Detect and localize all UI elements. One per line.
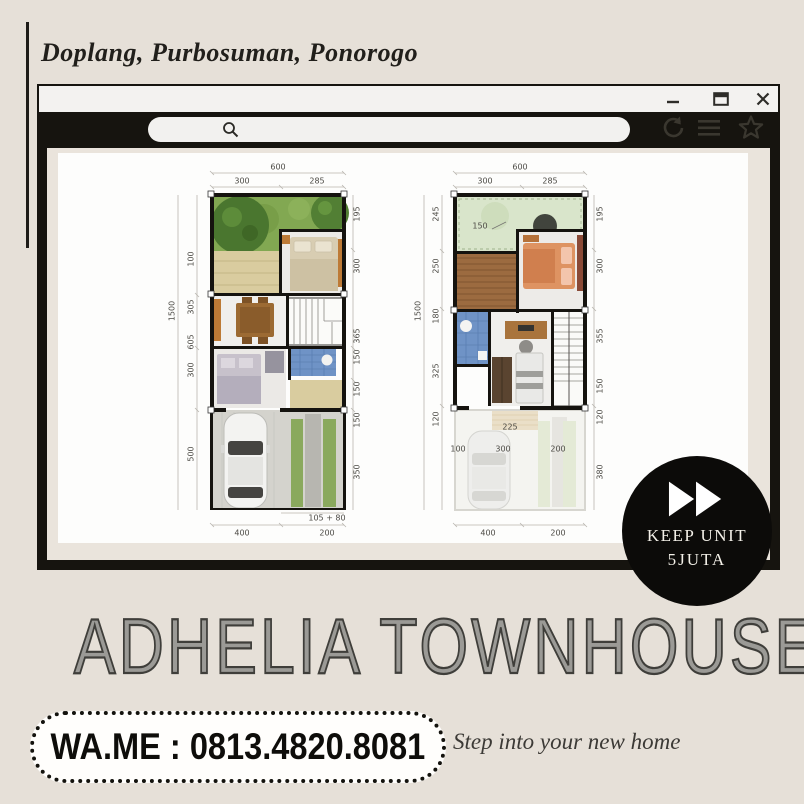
dim-label: 300	[596, 258, 605, 273]
dim-label: 225	[502, 423, 517, 432]
dim-label: 300	[495, 445, 510, 454]
dim-label: 305	[187, 299, 196, 314]
maximize-button[interactable]	[708, 86, 734, 112]
staircase	[288, 298, 344, 345]
magnifier-icon	[222, 121, 240, 139]
wood-deck	[455, 253, 518, 311]
dim-label: 1500	[414, 301, 423, 321]
browser-titlebar	[39, 86, 778, 112]
dim-label: 400	[480, 529, 495, 538]
dim-label: 150	[353, 412, 362, 427]
menu-icon[interactable]	[695, 117, 723, 144]
dim-label: 300	[477, 177, 492, 186]
sink	[478, 351, 487, 360]
dim-label: 200	[319, 529, 334, 538]
location-heading: Doplang, Purbosuman, Ponorogo	[41, 38, 418, 68]
chair	[519, 340, 533, 354]
tree-icon	[211, 196, 269, 254]
dim-label: 605	[187, 334, 196, 349]
dim-label: 325	[432, 363, 441, 378]
minimize-button[interactable]	[660, 86, 686, 112]
dim-label: 120	[596, 409, 605, 424]
dim-label: 600	[512, 163, 527, 172]
grass-strip	[323, 419, 336, 507]
refresh-icon[interactable]	[659, 115, 687, 146]
dim-label: 600	[270, 163, 285, 172]
workroom	[490, 311, 553, 406]
dim-label: 120	[432, 411, 441, 426]
tagline: Step into your new home	[453, 729, 680, 755]
dim-label: 250	[432, 258, 441, 273]
dim-label: 285	[309, 177, 324, 186]
main-title: ADHELIA TOWNHOUSE	[74, 601, 690, 692]
dim-label: 245	[432, 206, 441, 221]
dim-label: 500	[187, 446, 196, 461]
dim-label: 1500	[168, 301, 177, 321]
terrace	[212, 251, 281, 295]
poster: Doplang, Purbosuman, Ponorogo	[0, 0, 804, 804]
badge-line1: KEEP UNIT	[647, 526, 747, 546]
car-icon	[468, 431, 510, 509]
dim-label: 105 + 80	[308, 514, 345, 523]
dim-label: 300	[234, 177, 249, 186]
floor-plan-upper: 600 300 285 1500 245 250 180 325 120 195…	[410, 161, 650, 539]
whatsapp-number: WA.ME : 0813.4820.8081	[51, 726, 426, 768]
promo-badge: KEEP UNIT 5JUTA	[622, 456, 772, 606]
dim-label: 150	[596, 378, 605, 393]
car-icon	[221, 413, 270, 508]
rear-terrace	[290, 380, 344, 408]
close-button[interactable]	[750, 86, 776, 112]
dim-label: 150	[353, 349, 362, 364]
carport	[212, 410, 344, 510]
dim-label: 300	[353, 258, 362, 273]
search-input[interactable]	[148, 117, 630, 142]
grass-strip	[291, 419, 303, 507]
dim-label: 100	[187, 251, 196, 266]
staircase	[553, 311, 585, 406]
dim-label: 285	[542, 177, 557, 186]
dining-table	[236, 297, 274, 344]
floor-plan-ground: 600 300 285 1500 100 305 605 300 500 195…	[164, 161, 404, 539]
dim-label: 200	[550, 529, 565, 538]
dim-label: 195	[596, 206, 605, 221]
dim-label: 100	[450, 445, 465, 454]
bathroom	[455, 311, 490, 366]
bedroom	[281, 231, 344, 295]
dim-label: 350	[353, 464, 362, 479]
whatsapp-contact-pill[interactable]: WA.ME : 0813.4820.8081	[30, 711, 446, 783]
dim-label: 150	[353, 381, 362, 396]
toilet	[322, 355, 333, 366]
bathroom	[290, 348, 336, 376]
dim-label: 300	[187, 362, 196, 377]
dim-label: 365	[353, 328, 362, 343]
dim-label: 195	[353, 206, 362, 221]
dim-label: 150	[472, 222, 487, 231]
bedroom	[518, 231, 585, 311]
vertical-divider	[26, 22, 29, 248]
dining-room	[212, 295, 344, 348]
dim-label: 380	[596, 464, 605, 479]
bookmark-star-icon[interactable]	[737, 114, 765, 146]
fast-forward-icon	[668, 481, 726, 517]
dim-label: 180	[432, 308, 441, 323]
dim-label: 355	[596, 328, 605, 343]
bedroom	[212, 348, 286, 408]
ghost-lower-floor	[455, 410, 585, 510]
bed	[516, 353, 543, 403]
badge-line2: 5JUTA	[668, 550, 727, 570]
dim-label: 400	[234, 529, 249, 538]
toilet	[460, 320, 472, 332]
dim-label: 200	[550, 445, 565, 454]
